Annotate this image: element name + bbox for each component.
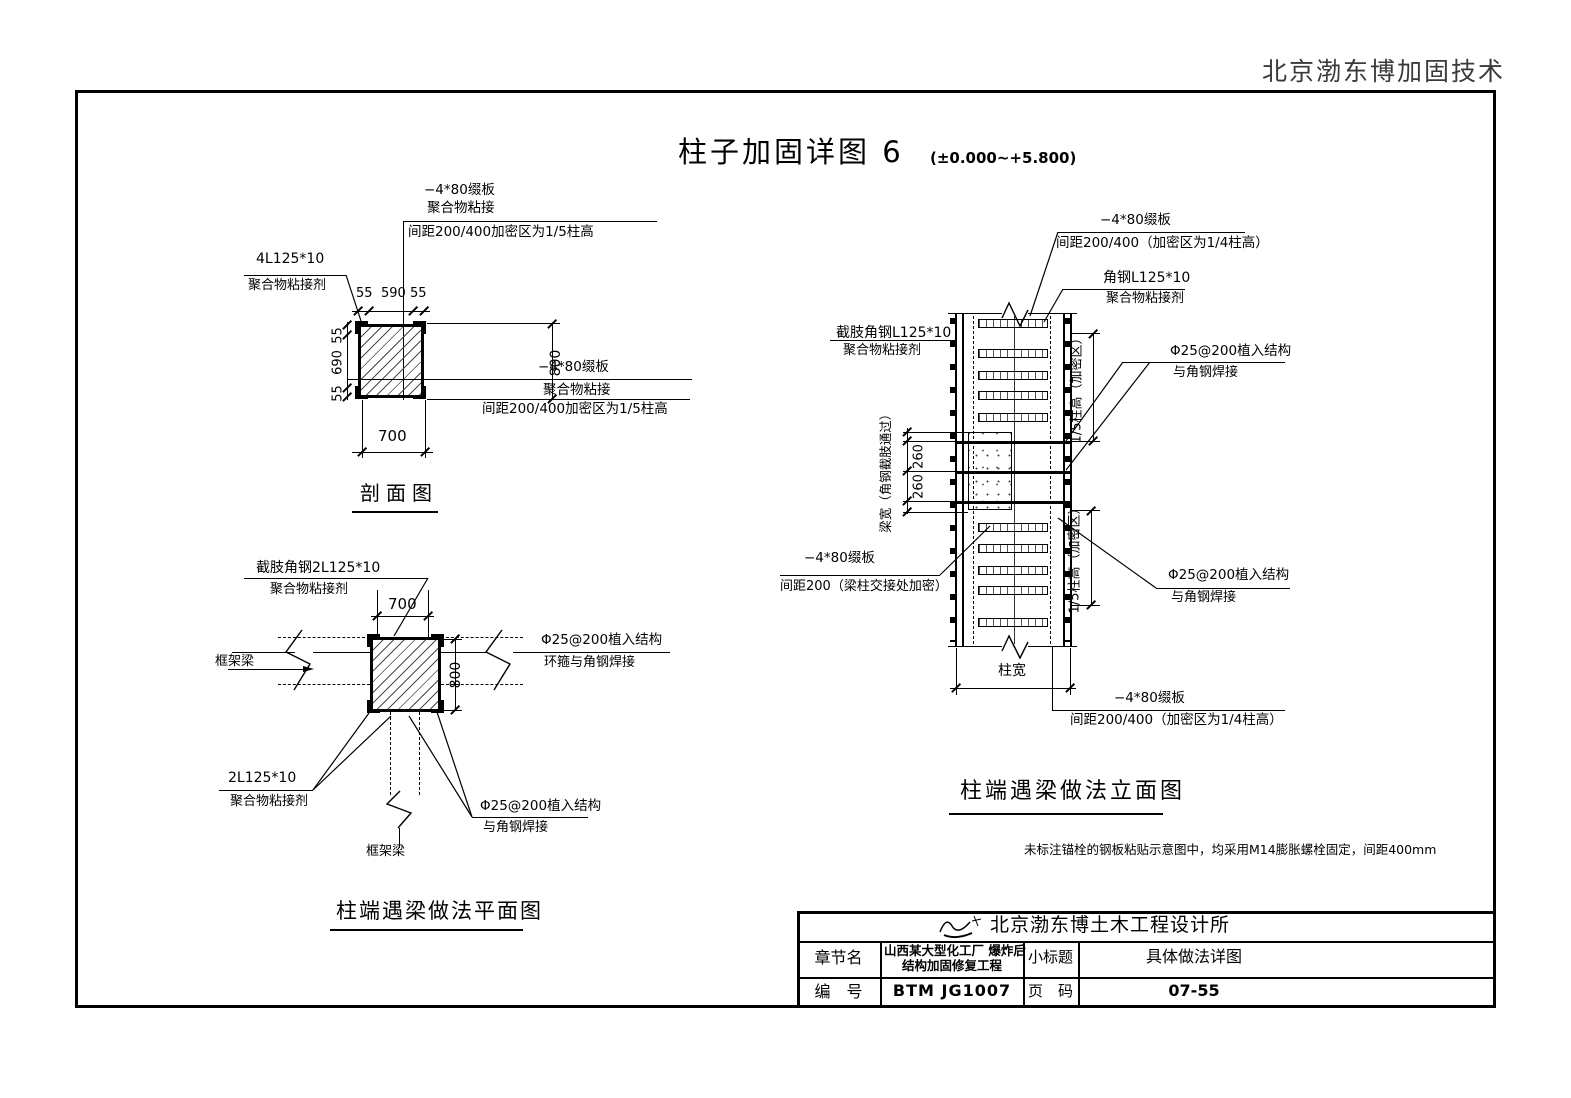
view-caption: 柱端遇梁做法立面图: [960, 779, 1185, 804]
dim-label: 55: [410, 287, 427, 302]
cell-subtitle-value: 具体做法详图: [1078, 948, 1310, 966]
batten-plate: [978, 371, 1048, 380]
beam-edge-dashed: [419, 712, 420, 795]
annotation-weld: 与角钢焊接: [483, 821, 548, 836]
drawing-title: 柱子加固详图 6: [678, 136, 904, 169]
batten-plate: [978, 523, 1048, 532]
cell-project-name-line2: 结构加固修复工程: [884, 959, 1020, 973]
column-break-line: [1028, 313, 1077, 314]
angle-steel-corner: [413, 386, 426, 399]
annotation-angle-steel: 角钢L125*10: [1103, 270, 1190, 286]
leader-line: [780, 575, 940, 576]
annotation-cut-angle: 截肢角钢L125*10: [836, 325, 951, 341]
dim-label: 700: [378, 428, 407, 445]
company-name: 北京渤东博土木工程设计所: [990, 915, 1230, 937]
annotation-batten-plate: −4*80缀板: [1114, 691, 1185, 707]
leader-line: [1058, 232, 1245, 233]
angle-steel-corner: [367, 700, 380, 713]
cell-number-value: BTM JG1007: [884, 982, 1020, 1000]
angle-hidden-line: [1050, 316, 1051, 644]
dim-ext-line: [903, 432, 968, 433]
caption-underline: [330, 929, 523, 931]
dim-label: 590: [381, 287, 406, 302]
beam-label: 框架梁: [366, 845, 405, 860]
angle-steel-corner: [367, 634, 380, 647]
dim-label-beam-width: 梁宽（角钢截肢通过）: [879, 395, 893, 545]
dim-label: 1/5柱高（加密区）: [1069, 497, 1084, 617]
annotation-spacing: 间距200/400加密区为1/5柱高: [482, 402, 668, 418]
cell-project-name-line1: 山西某大型化工厂 爆炸后: [884, 944, 1020, 958]
annotation-weld: 与角钢焊接: [1171, 591, 1236, 606]
dim-line: [950, 688, 1076, 689]
dim-label: 55: [332, 378, 347, 408]
dim-label: 260: [913, 468, 928, 504]
annotation-rebar: Φ25@200植入结构: [1168, 568, 1289, 584]
caption-underline: [949, 813, 1163, 815]
leader-line: [244, 275, 346, 276]
leader-line: [403, 221, 657, 222]
leader-line: [472, 817, 588, 818]
dim-label: 800: [548, 343, 564, 383]
cell-label-number: 编 号: [797, 983, 880, 1001]
page-header-brand: 北京渤东博加固技术: [1262, 58, 1505, 87]
leader-line: [244, 578, 428, 579]
annotation-batten-plate: −4*80缀板: [1100, 213, 1171, 229]
annotation-spacing: 间距200/400加密区为1/5柱高: [408, 225, 594, 241]
cell-label-chapter: 章节名: [797, 949, 880, 967]
angle-steel-corner: [431, 634, 444, 647]
angle-steel-corner: [355, 386, 368, 399]
view-caption: 柱端遇梁做法平面图: [336, 899, 543, 923]
annotation-batten-plate: −4*80缀板: [804, 551, 875, 567]
leader-line: [1052, 710, 1285, 711]
dim-line: [352, 311, 430, 312]
beam-edge-dashed: [278, 684, 370, 685]
annotation-weld: 与角钢焊接: [1173, 366, 1238, 381]
dim-label: 800: [448, 655, 464, 695]
dim-line: [1091, 510, 1092, 605]
caption-underline: [352, 511, 438, 513]
beam-label: 框架梁: [215, 655, 254, 670]
dim-label: 柱宽: [998, 663, 1026, 679]
annotation-adhesive: 聚合物粘接剂: [1106, 292, 1184, 307]
annotation-angle-steel: 4L125*10: [256, 251, 324, 267]
leader-line: [1123, 362, 1285, 363]
annotation-polymer-bond: 聚合物粘接: [427, 201, 495, 217]
angle-steel-corner: [355, 321, 368, 334]
dim-ext-line: [903, 501, 956, 502]
anchor-bolts-left: [950, 318, 957, 642]
dim-ext-line: [903, 441, 956, 442]
annotation-angle-steel: 2L125*10: [228, 770, 296, 786]
cell-label-page: 页 码: [1023, 983, 1078, 1000]
dim-label: 700: [388, 596, 417, 613]
dim-ext-line: [903, 512, 968, 513]
table-line: [797, 977, 1496, 979]
annotation-adhesive: 聚合物粘接剂: [230, 795, 308, 810]
leader-line: [1052, 646, 1053, 710]
beam-line: [513, 652, 670, 653]
annotation-adhesive: 聚合物粘接剂: [843, 344, 921, 359]
column-edge: [962, 313, 964, 646]
dim-label: 1/5柱高（加密区）: [1071, 327, 1086, 447]
sheet-border: [75, 90, 1496, 1008]
drawing-elevation-range: (±0.000~+5.800): [930, 150, 1076, 167]
beam-line: [313, 652, 370, 653]
rebar-heavy-line: [956, 441, 1070, 444]
beam-edge-dashed: [278, 637, 370, 638]
rebar-heavy-line: [956, 471, 1070, 474]
column-break-line: [948, 313, 1002, 314]
batten-plate: [978, 349, 1048, 358]
dim-line: [1093, 333, 1094, 441]
batten-plate: [978, 319, 1048, 328]
leader-line: [1063, 289, 1185, 290]
batten-plate: [978, 618, 1048, 627]
rebar-heavy-line: [956, 501, 1070, 504]
beam-line: [232, 652, 295, 653]
annotation-batten-plate: −4*80缀板: [424, 183, 495, 199]
dim-ext-line: [903, 471, 956, 472]
dim-ext-line: [427, 399, 560, 400]
leader-line: [830, 340, 955, 341]
dim-label: 55: [356, 287, 373, 302]
angle-steel-corner: [431, 700, 444, 713]
batten-plate: [978, 566, 1048, 575]
column-break-line: [948, 646, 1002, 647]
annotation-rebar: Φ25@200植入结构: [1170, 344, 1291, 360]
batten-plate: [978, 391, 1048, 400]
annotation-rebar: Φ25@200植入结构: [480, 799, 601, 815]
cell-label-subtitle: 小标题: [1023, 949, 1078, 966]
annotation-spacing: 间距200/400（加密区为1/4柱高）: [1070, 713, 1283, 729]
annotation-adhesive: 聚合物粘接剂: [248, 279, 326, 294]
cell-page-value: 07-55: [1078, 982, 1310, 1000]
view-caption: 剖面图: [360, 482, 438, 505]
dim-ext-line: [427, 323, 560, 324]
leader-line: [1156, 588, 1290, 589]
leader-line: [347, 379, 692, 380]
batten-plate: [978, 544, 1048, 553]
batten-plate: [978, 586, 1048, 595]
batten-plate: [978, 413, 1048, 422]
annotation-adhesive: 聚合物粘接剂: [270, 583, 348, 598]
beam-line: [441, 652, 486, 653]
angle-steel-corner: [413, 321, 426, 334]
leader-line: [219, 790, 313, 791]
centerline-arrow: [303, 666, 314, 672]
annotation-spacing: 间距200/400（加密区为1/4柱高）: [1056, 236, 1269, 252]
annotation-rebar: Φ25@200植入结构: [541, 633, 662, 649]
general-note: 未标注锚栓的钢板粘贴示意图中，均采用M14膨胀螺栓固定，间距400mm: [1024, 843, 1436, 857]
drawing-sheet: 北京渤东博加固技术 柱子加固详图 6 (±0.000~+5.800) −4*80…: [0, 0, 1571, 1098]
table-line: [880, 941, 882, 1008]
annotation-weld: 环箍与角钢焊接: [544, 656, 635, 671]
annotation-cut-angle: 截肢角钢2L125*10: [256, 560, 380, 576]
beam-edge-dashed: [390, 712, 391, 795]
dim-label: 690: [332, 344, 347, 380]
annotation-spacing: 间距200（梁柱交接处加密）: [780, 580, 948, 595]
